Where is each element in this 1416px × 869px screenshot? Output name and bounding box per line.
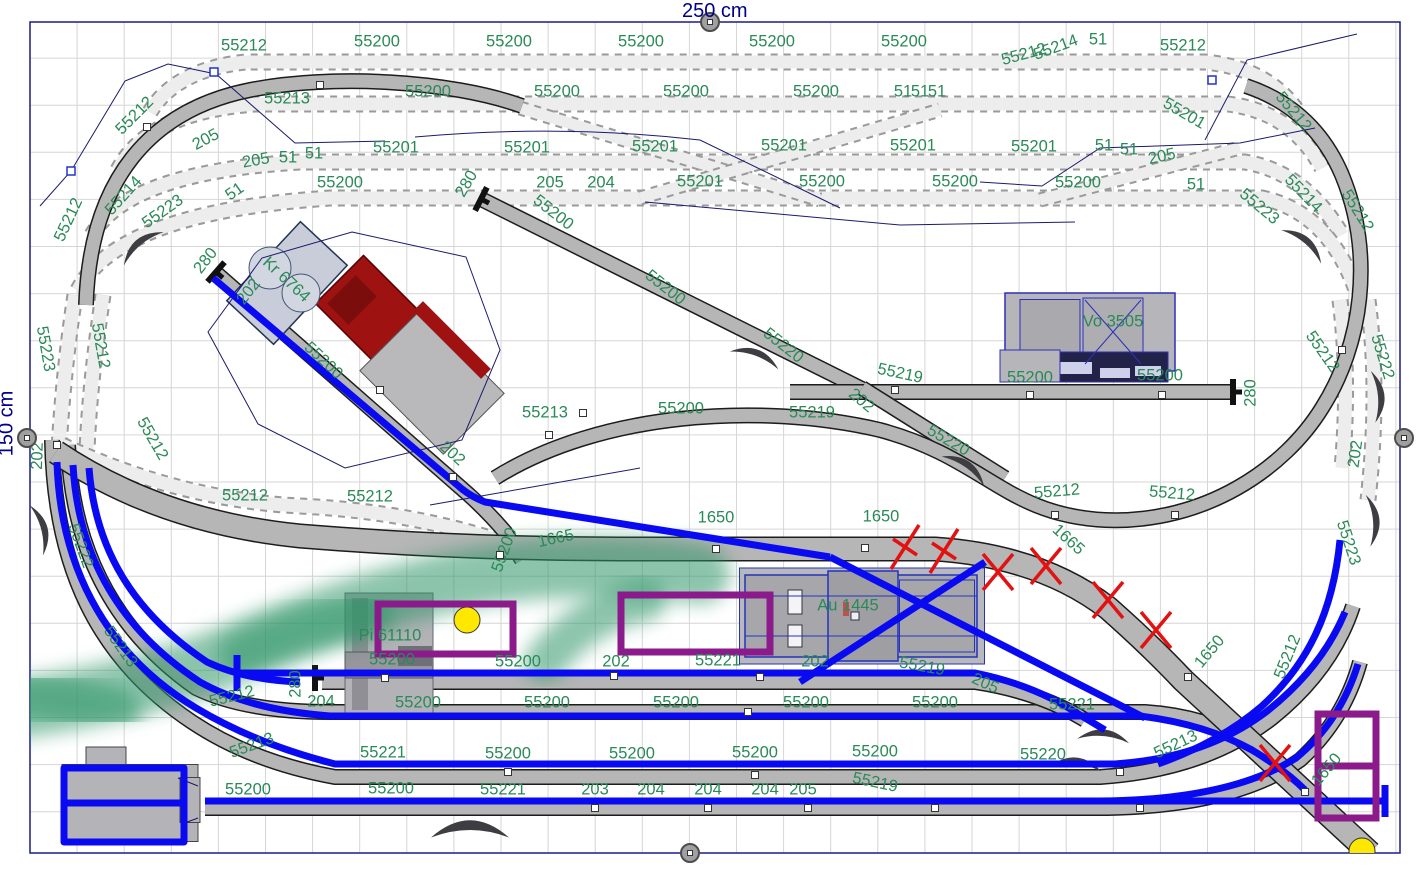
track-label: 204: [751, 780, 779, 798]
track-node[interactable]: [1302, 789, 1309, 796]
track-node[interactable]: [1172, 512, 1179, 519]
track-label: 55200: [618, 32, 664, 50]
track-label: 55201: [373, 138, 419, 156]
track-label: 55200: [395, 693, 441, 711]
track-label: 55200: [1055, 173, 1101, 191]
track-node[interactable]: [1137, 805, 1144, 812]
track-label: 55212: [1302, 328, 1343, 376]
tunnel-portal[interactable]: [431, 820, 509, 837]
track-node[interactable]: [592, 805, 599, 812]
track-node[interactable]: [497, 552, 504, 559]
track-label: Au 1445: [817, 596, 878, 614]
track-label: 55200: [881, 32, 927, 50]
dimension-width-label: 250 cm: [682, 0, 748, 23]
track-label: 55200: [912, 693, 958, 711]
track-label: 202: [602, 652, 630, 670]
track-node[interactable]: [1159, 392, 1166, 399]
track-label: 51: [1120, 140, 1138, 158]
track-node[interactable]: [1052, 512, 1059, 519]
track-node[interactable]: [611, 673, 618, 680]
track-label: 55200: [405, 82, 451, 100]
track-label: 55200: [524, 693, 570, 711]
track-label: 51: [928, 82, 946, 100]
track-label: 55200: [354, 32, 400, 50]
track-label: 55200: [749, 32, 795, 50]
track-label: 55201: [1011, 137, 1057, 155]
track-node[interactable]: [546, 432, 553, 439]
track-label: 55212: [347, 487, 393, 505]
track-label: 55201: [890, 136, 936, 154]
track-label: 1650: [1191, 632, 1228, 672]
selection-handle[interactable]: [18, 429, 36, 447]
track-node[interactable]: [1339, 347, 1346, 354]
track-node[interactable]: [757, 674, 764, 681]
track-label: 55200: [485, 744, 531, 762]
track-label: 204: [637, 780, 665, 798]
selection-handle[interactable]: [681, 844, 699, 862]
track-node[interactable]: [1027, 392, 1034, 399]
track-label: 55221: [695, 651, 741, 669]
track-label: 55200: [663, 82, 709, 100]
track-node[interactable]: [892, 387, 899, 394]
track-label: 1665: [1049, 521, 1088, 559]
track-node[interactable]: [932, 805, 939, 812]
track-label: 55200: [793, 82, 839, 100]
building-vo-3505-wing[interactable]: [1020, 300, 1080, 355]
track-node[interactable]: [382, 675, 389, 682]
track-label: 55212: [51, 195, 87, 244]
track-label: 1650: [698, 508, 735, 526]
track-label: 55200: [783, 693, 829, 711]
track-node[interactable]: [580, 410, 587, 417]
track-label: 51: [911, 82, 929, 100]
track-label: 51: [1187, 175, 1205, 193]
track-label: 55200: [799, 172, 845, 190]
track-label: 51: [894, 82, 912, 100]
track-node[interactable]: [1117, 769, 1124, 776]
building-au-1445-window[interactable]: [788, 590, 802, 614]
track-node[interactable]: [377, 387, 384, 394]
track-label: 55200: [317, 173, 363, 191]
track-label: 55212: [222, 486, 268, 504]
track-label: 204: [694, 780, 722, 798]
track-label: 55212: [1148, 482, 1195, 504]
scenery-green-airbrush: [0, 688, 115, 712]
track-hidden[interactable]: [1368, 300, 1374, 500]
track-label: 55200: [534, 82, 580, 100]
track-label: 55212: [221, 36, 267, 54]
track-node[interactable]: [752, 772, 759, 779]
track-node[interactable]: [54, 442, 61, 449]
track-label: 55200: [1007, 368, 1053, 386]
plan-layers: 5521255200552005520055200552005521255214…: [0, 30, 1398, 864]
track-label: 204: [587, 173, 615, 191]
track-label: 55219: [876, 360, 925, 387]
track-label: 55201: [761, 136, 807, 154]
track-label: 55223: [33, 325, 59, 373]
track-node[interactable]: [317, 82, 324, 89]
track-label: 55200: [658, 399, 704, 417]
track-label: 1650: [863, 507, 900, 525]
track-label: 55200: [609, 744, 655, 762]
track-label: 55201: [632, 137, 678, 155]
track-label: 55212: [1160, 36, 1206, 54]
track-label: 55219: [789, 403, 835, 421]
track-label: 55200: [1137, 366, 1183, 384]
track-label: 55200: [369, 650, 415, 668]
track-label: 55212: [133, 414, 172, 463]
track-node[interactable]: [745, 709, 752, 716]
track-label: 55200: [732, 743, 778, 761]
track-plan-drawing[interactable]: 5521255200552005520055200552005521255214…: [0, 0, 1416, 869]
track-label: 55221: [360, 743, 406, 761]
track-node[interactable]: [505, 769, 512, 776]
tunnel-portal[interactable]: [1366, 494, 1382, 547]
track-plan-canvas[interactable]: 5521255200552005520055200552005521255214…: [0, 0, 1416, 869]
track-label: 55212: [1033, 480, 1080, 502]
track-label: 204: [307, 692, 335, 710]
building-vo-3505-window[interactable]: [1100, 368, 1130, 378]
track-node[interactable]: [805, 805, 812, 812]
dimension-height-label: 150 cm: [0, 391, 18, 457]
track-node[interactable]: [713, 546, 720, 553]
track-label: 55220: [1020, 745, 1066, 763]
track-label: 55200: [495, 652, 541, 670]
yellow-marker[interactable]: [1349, 838, 1375, 864]
track-label: 55200: [368, 779, 414, 797]
track-node[interactable]: [144, 124, 151, 131]
track-label: Vo 3505: [1083, 312, 1144, 330]
track-label: 202: [1345, 439, 1367, 469]
track-label: 205: [789, 780, 817, 798]
track-label: 51: [305, 144, 323, 162]
track-label: 55200: [486, 32, 532, 50]
track-node[interactable]: [1185, 674, 1192, 681]
track-label: 51: [222, 179, 247, 204]
track-label: 55200: [653, 693, 699, 711]
track-label: 55221: [1049, 695, 1095, 713]
track-node[interactable]: [862, 545, 869, 552]
track-label: 202: [801, 652, 829, 670]
track-node[interactable]: [705, 805, 712, 812]
track-label: 55213: [522, 403, 568, 421]
track-label: 51: [1089, 30, 1107, 48]
track-label: 55221: [480, 780, 526, 798]
selection-vertex[interactable]: [1208, 76, 1216, 84]
track-label: 280: [1241, 379, 1259, 407]
building-vo-3505-window[interactable]: [1058, 362, 1092, 374]
track-label: 51: [279, 148, 297, 166]
track-label: 205: [536, 173, 564, 191]
selection-vertex[interactable]: [67, 167, 75, 175]
track-label: 280: [286, 670, 304, 698]
track-label: 55201: [677, 172, 723, 190]
track-label: 55200: [932, 172, 978, 190]
track-label: 203: [581, 780, 609, 798]
track-label: 205: [189, 125, 222, 154]
track-node[interactable]: [450, 474, 457, 481]
yellow-marker[interactable]: [454, 607, 480, 633]
track-label: 55213: [264, 89, 310, 107]
track-label: Pi 61110: [359, 626, 422, 644]
track-label: 55200: [852, 742, 898, 760]
track-label: 51: [1095, 136, 1113, 154]
selection-handle[interactable]: [1395, 429, 1413, 447]
track-label: 55201: [504, 138, 550, 156]
track-label: 55200: [225, 780, 271, 798]
selection-vertex[interactable]: [210, 68, 218, 76]
